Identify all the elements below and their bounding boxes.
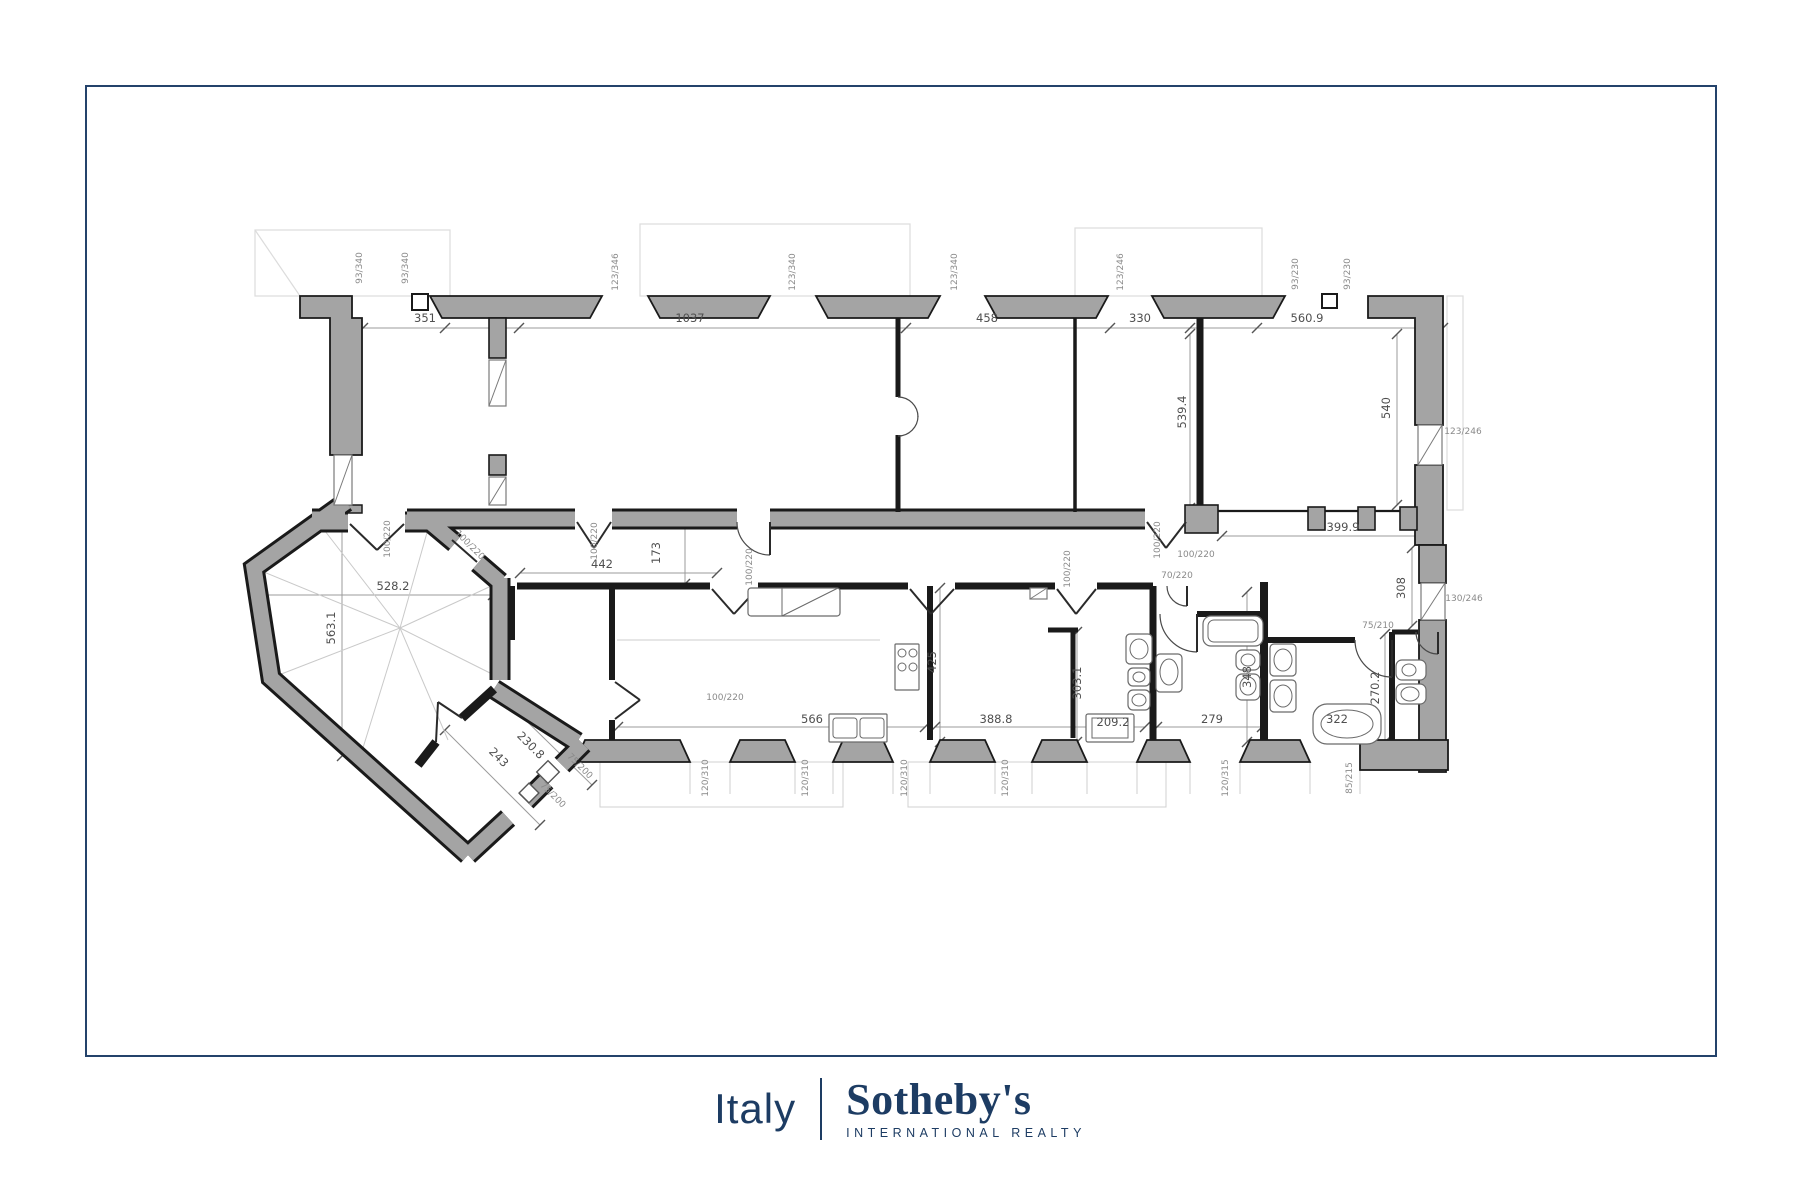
dimension-label: 100/220: [745, 548, 755, 586]
dimension-label: 85/215: [1345, 762, 1355, 794]
dimension-label: 123/246: [1444, 427, 1482, 437]
dimension-label: 93/340: [355, 252, 365, 284]
dimension-label: 303.1: [1070, 667, 1084, 700]
dimension-label: 120/310: [801, 759, 811, 797]
brand-divider: [820, 1078, 822, 1140]
dimension-label: 120/310: [701, 759, 711, 797]
dimension-label: 230.8: [514, 729, 547, 762]
dimension-label: 93/230: [1291, 258, 1301, 290]
sink: [1270, 644, 1296, 676]
dimension-label: 1037: [675, 311, 704, 325]
sink: [1270, 680, 1296, 712]
stove: [895, 644, 919, 690]
dimension-label: 123/340: [950, 253, 960, 291]
dimension-label: 123/340: [788, 253, 798, 291]
sink: [1126, 634, 1152, 664]
dimension-label: 563.1: [324, 612, 338, 645]
dimension-label: 100/220: [383, 520, 393, 558]
dimension-label: 120/310: [1001, 759, 1011, 797]
dimension-label: 123/346: [611, 253, 621, 291]
dimension-label: 330: [1129, 311, 1151, 325]
interior-walls: [418, 318, 1418, 765]
dimension-label: 100/220: [1063, 550, 1073, 588]
dimension-label: 270.2: [1368, 672, 1382, 705]
dimension-label: 100/220: [1177, 550, 1215, 560]
dimension-label: 348: [1240, 666, 1254, 688]
dimension-label: 458: [976, 311, 998, 325]
dimension-label: 173: [649, 542, 663, 564]
dimension-label: 70/220: [1161, 571, 1193, 581]
brand-tagline: INTERNATIONAL REALTY: [846, 1126, 1086, 1140]
octagon-room-spokes: [254, 522, 500, 764]
dimension-label: 130/246: [1445, 594, 1483, 604]
dimension-label: 442: [591, 557, 613, 571]
fixtures: [617, 588, 1426, 744]
sink: [1156, 654, 1182, 692]
dimension-label: 560.9: [1291, 311, 1324, 325]
dimension-label: 351: [414, 311, 436, 325]
dimension-label: 120/310: [900, 759, 910, 797]
brand-region-label: Italy: [714, 1085, 796, 1133]
dimension-label: 243: [486, 744, 511, 769]
bidet: [1128, 668, 1150, 686]
dimension-label: 100/220: [1153, 521, 1163, 559]
dimension-label: 388.8: [980, 712, 1013, 726]
brand-name-block: Sotheby's INTERNATIONAL REALTY: [846, 1078, 1086, 1140]
dimension-label: 209.2: [1097, 715, 1130, 729]
brand-logo: Italy Sotheby's INTERNATIONAL REALTY: [0, 1078, 1800, 1140]
kitchen-cabinet: [748, 588, 840, 616]
dimension-label: 93/340: [401, 252, 411, 284]
brand-name: Sotheby's: [846, 1078, 1031, 1122]
dimension-label: 540: [1379, 397, 1393, 419]
bathtub: [1203, 616, 1263, 646]
page: { "page": { "background": "#ffffff", "fr…: [0, 0, 1800, 1200]
roof-outline-guides: [255, 224, 1463, 510]
dimension-label: 100/220: [590, 522, 600, 560]
dimension-label: 528.2: [377, 579, 410, 593]
dimension-label: 100/220: [706, 693, 744, 703]
dimension-label: 123/246: [1116, 253, 1126, 291]
dimension-label: 399.9: [1327, 520, 1360, 534]
kitchen-sink: [829, 714, 887, 742]
dimension-label: 308: [1394, 577, 1408, 599]
toilet: [1396, 684, 1426, 704]
dimension-label: 322: [1326, 712, 1348, 726]
dimension-label: 566: [801, 712, 823, 726]
dimension-label: 539.4: [1175, 396, 1189, 429]
dimension-label: 75/210: [1362, 621, 1394, 631]
toilet: [1128, 690, 1150, 710]
bidet: [1396, 660, 1426, 680]
dimension-label: 425: [925, 651, 939, 673]
dimension-label: 93/230: [1343, 258, 1353, 290]
dimension-label: 279: [1201, 712, 1223, 726]
dimension-label: 120/315: [1221, 759, 1231, 796]
floor-plan-svg: 93/34093/340123/346123/340123/340123/246…: [0, 0, 1800, 1200]
